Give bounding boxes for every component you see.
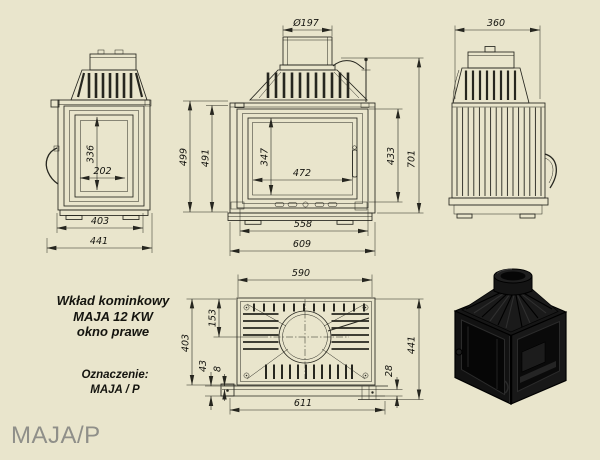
render-3d xyxy=(455,269,566,404)
dim-total-height: 701 xyxy=(407,150,418,168)
door-latch xyxy=(353,150,358,177)
dimension-labels: 336 202 403 441 499 491 Ø197 347 472 433… xyxy=(86,18,506,409)
dim-top-depth-total: 441 xyxy=(407,336,418,354)
air-vents xyxy=(231,202,367,210)
dim-front-height: 499 xyxy=(179,148,190,166)
dim-flue-diameter: Ø197 xyxy=(292,18,319,29)
top-fin-ticks xyxy=(254,304,364,312)
front-body xyxy=(230,103,375,213)
dim-front-height-inner: 491 xyxy=(201,149,212,167)
front-view xyxy=(228,37,375,224)
dim-glass-width: 472 xyxy=(293,168,311,179)
dim-side-depth: 403 xyxy=(91,216,109,227)
dim-top-width-total: 611 xyxy=(294,398,312,409)
render-handle-knob xyxy=(456,349,462,355)
designation-value: MAJA / P xyxy=(50,383,180,398)
rear-body xyxy=(452,103,545,198)
page-caption: MAJA/P xyxy=(11,422,101,450)
designation-block: Oznaczenie: MAJA / P xyxy=(50,368,180,398)
title-block: Wkład kominkowy MAJA 12 KW okno prawe xyxy=(28,293,198,340)
side-body xyxy=(58,100,150,210)
rear-dome xyxy=(453,68,529,103)
dim-top-width: 590 xyxy=(292,268,310,279)
front-flue-collar xyxy=(283,37,332,65)
side-handle xyxy=(46,148,58,184)
dim-top-rear-gap: 28 xyxy=(384,365,395,377)
dim-side-glass-width: 202 xyxy=(93,166,111,177)
rear-fins xyxy=(457,108,541,197)
side-dome-ribs xyxy=(78,73,142,98)
product-variant: okno prawe xyxy=(28,324,198,340)
top-damper-rod xyxy=(328,318,369,331)
dim-side-depth-total: 441 xyxy=(90,236,108,247)
dim-door-height: 433 xyxy=(386,147,397,165)
dim-front-width-total: 609 xyxy=(293,239,311,250)
designation-label: Oznaczenie: xyxy=(50,368,180,383)
dim-rear-width: 360 xyxy=(487,18,505,29)
damper-rod xyxy=(333,61,364,69)
rear-flue-collar xyxy=(468,52,514,68)
dim-side-glass-height: 336 xyxy=(86,145,97,163)
side-flue-collar xyxy=(90,54,136,70)
dim-glass-height: 347 xyxy=(260,148,271,166)
top-right-fins xyxy=(332,314,370,349)
product-name: MAJA 12 KW xyxy=(28,309,198,325)
rear-handle xyxy=(545,154,556,188)
top-left-fins xyxy=(243,314,279,349)
dim-top-foot: 43 xyxy=(198,360,209,372)
top-bottom-comb xyxy=(266,365,352,380)
top-view xyxy=(221,298,388,400)
product-type: Wkład kominkowy xyxy=(28,293,198,309)
dim-front-width: 558 xyxy=(294,219,312,230)
front-dome-ribs xyxy=(268,73,348,99)
side-view xyxy=(46,50,151,220)
dim-top-flue-center: 153 xyxy=(208,309,219,327)
rear-dome-ribs xyxy=(466,71,515,101)
drawing-page: 336 202 403 441 499 491 Ø197 347 472 433… xyxy=(0,0,600,460)
dim-top-gap: 8 xyxy=(213,366,224,372)
